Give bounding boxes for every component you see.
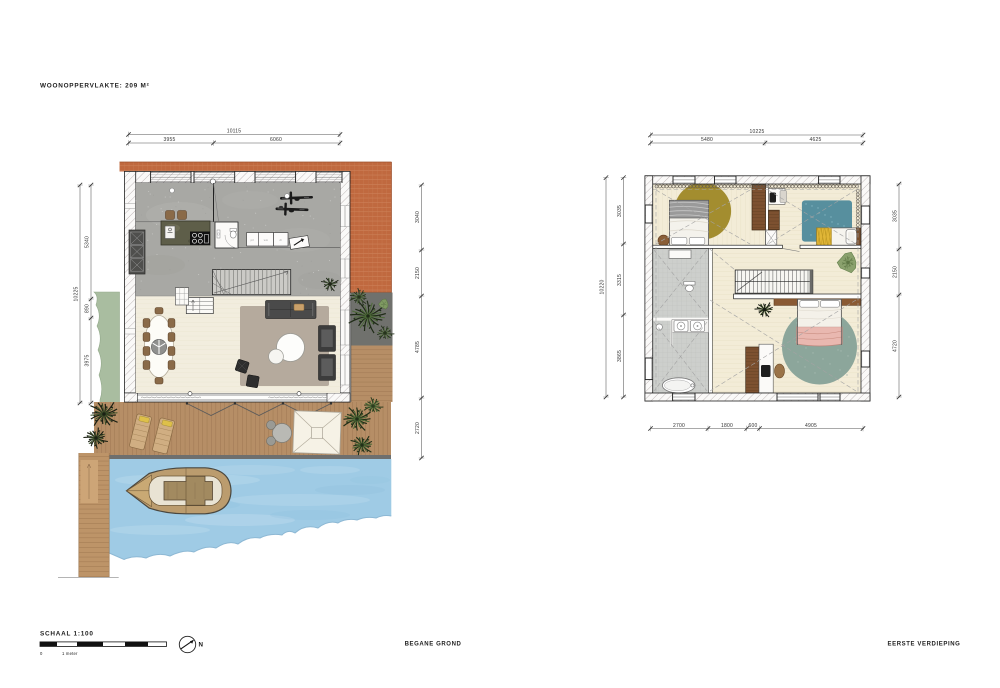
svg-text:wm: wm [264, 239, 268, 242]
svg-text:6060: 6060 [270, 137, 282, 143]
svg-text:4785: 4785 [415, 341, 421, 353]
svg-text:3035: 3035 [617, 205, 623, 217]
svg-text:890: 890 [85, 304, 91, 313]
svg-text:4720: 4720 [893, 340, 899, 352]
svg-text:3035: 3035 [893, 210, 899, 222]
svg-text:3040: 3040 [415, 211, 421, 223]
svg-text:10115: 10115 [227, 129, 242, 135]
svg-text:BEGANE GROND: BEGANE GROND [405, 642, 462, 648]
svg-text:4625: 4625 [810, 137, 822, 143]
svg-text:600: 600 [749, 423, 758, 429]
svg-text:SCHAAL 1:100: SCHAAL 1:100 [40, 631, 94, 638]
svg-text:10225: 10225 [74, 287, 80, 302]
svg-text:3315: 3315 [617, 274, 623, 286]
svg-text:prl: prl [251, 238, 255, 242]
svg-text:1 meter: 1 meter [62, 651, 78, 656]
svg-text:5480: 5480 [701, 137, 713, 143]
svg-text:WOONOPPERVLAKTE: 209 M²: WOONOPPERVLAKTE: 209 M² [40, 83, 149, 90]
svg-text:EERSTE VERDIEPING: EERSTE VERDIEPING [888, 642, 961, 648]
svg-text:3955: 3955 [164, 137, 176, 143]
svg-text:2720: 2720 [415, 422, 421, 434]
svg-text:10225: 10225 [750, 129, 765, 135]
svg-text:4905: 4905 [805, 423, 817, 429]
svg-text:3975: 3975 [85, 355, 91, 367]
svg-text:3865: 3865 [617, 350, 623, 362]
svg-text:10220: 10220 [600, 280, 606, 295]
svg-text:dr: dr [279, 238, 282, 242]
svg-text:2700: 2700 [673, 423, 685, 429]
svg-text:N: N [199, 642, 204, 649]
svg-text:1800: 1800 [721, 423, 733, 429]
svg-text:5340: 5340 [85, 236, 91, 248]
svg-text:2150: 2150 [415, 267, 421, 279]
svg-text:2150: 2150 [893, 266, 899, 278]
